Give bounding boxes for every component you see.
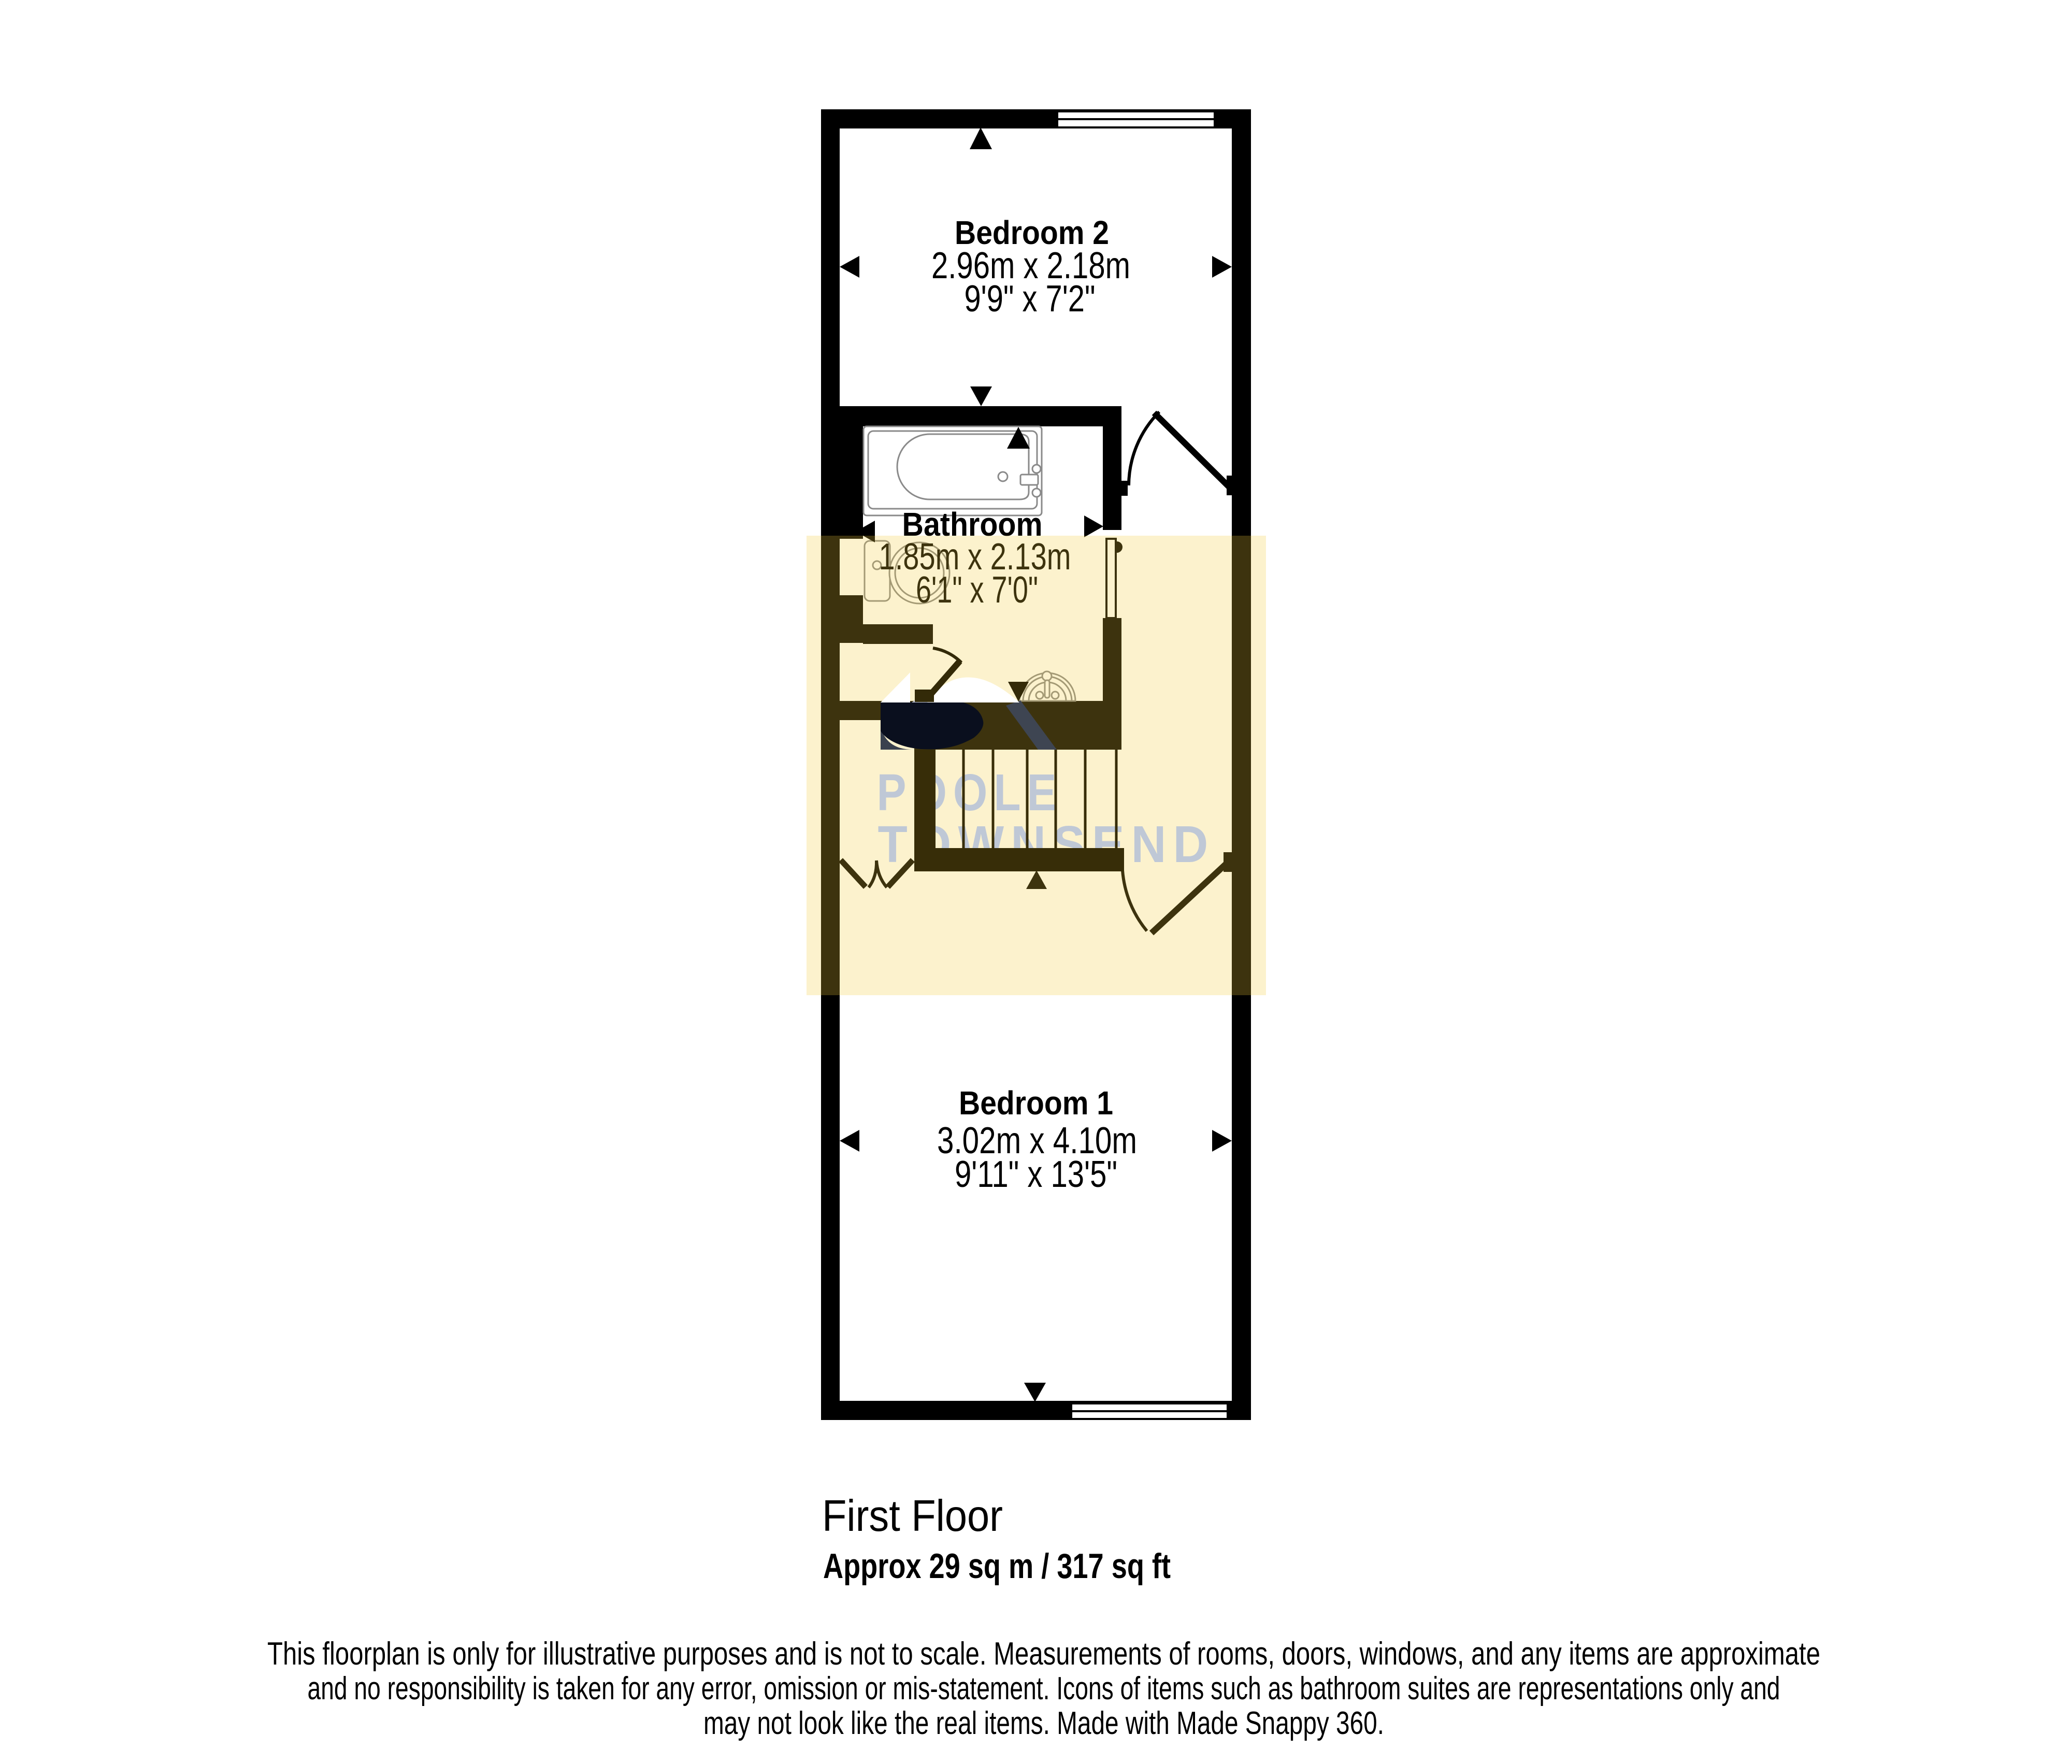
svg-text:POOLE: POOLE (877, 764, 1063, 822)
svg-text:may not look like the real ite: may not look like the real items. Made w… (703, 1705, 1384, 1741)
svg-text:This floorplan is only for ill: This floorplan is only for illustrative … (267, 1636, 1820, 1672)
svg-text:Approx 29 sq m / 317 sq ft: Approx 29 sq m / 317 sq ft (823, 1546, 1171, 1586)
svg-text:and no responsibility is taken: and no responsibility is taken for any e… (308, 1671, 1780, 1706)
svg-text:Bedroom 1: Bedroom 1 (959, 1084, 1113, 1122)
svg-text:First Floor: First Floor (822, 1491, 1003, 1541)
svg-text:9'11" x 13'5": 9'11" x 13'5" (955, 1154, 1117, 1195)
svg-text:9'9" x 7'2": 9'9" x 7'2" (965, 278, 1096, 320)
